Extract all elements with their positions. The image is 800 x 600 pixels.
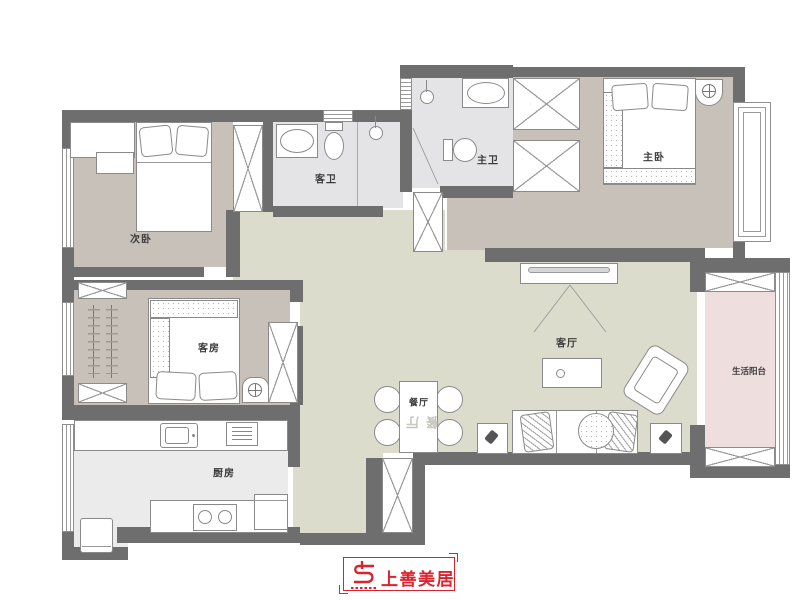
- wall: [440, 186, 513, 198]
- logo-fine-print: [351, 587, 377, 589]
- tv-screen: [528, 267, 610, 273]
- dining-chair: [436, 419, 463, 446]
- water-heater-line: [82, 546, 111, 547]
- balcony-cabinet-xbox: [705, 447, 775, 467]
- burner: [198, 510, 212, 524]
- floor-hallway-left: [233, 255, 300, 280]
- floor-plan: 次卧 客卫 主卫 主卧 客房 厨房 餐厅 客厅 生活阳台 餐厅 上善美居: [0, 0, 800, 600]
- wardrobe-xbox: [233, 125, 263, 212]
- sink-basin: [467, 82, 505, 104]
- guestroom-cabinet-xbox: [78, 282, 127, 299]
- room-label-kitchen: 厨房: [213, 465, 235, 480]
- lamp-symbol: [248, 383, 262, 397]
- dining-chair: [374, 386, 401, 413]
- bed-runner: [603, 168, 696, 184]
- room-label-guest-bathroom: 客卫: [315, 171, 337, 186]
- room-label-guest-room: 客房: [198, 340, 220, 355]
- dining-chair: [436, 386, 463, 413]
- wall: [62, 110, 273, 122]
- wall: [273, 206, 383, 217]
- vent-grille: [226, 422, 258, 446]
- toilet-tank: [443, 139, 453, 161]
- wall: [705, 258, 790, 272]
- master-wardrobe-xbox: [513, 78, 580, 130]
- room-label-balcony: 生活阳台: [732, 365, 766, 377]
- wall: [226, 210, 240, 277]
- toilet-tank: [325, 122, 343, 131]
- guestroom-cabinet-xbox: [78, 383, 127, 403]
- guestroom-wardrobe-xbox: [268, 322, 298, 403]
- dining-watermark: 餐厅: [399, 414, 439, 433]
- shower-stem: [426, 80, 427, 92]
- bed-side-strip: [150, 318, 170, 378]
- wall: [485, 248, 697, 262]
- wall: [62, 405, 300, 420]
- window: [62, 148, 74, 248]
- pillow: [651, 83, 689, 111]
- wall: [290, 280, 303, 302]
- room-label-master-bedroom: 主卧: [643, 149, 665, 164]
- dining-chair: [374, 419, 401, 446]
- master-wardrobe-xbox: [513, 140, 580, 192]
- balcony-cabinet-xbox: [705, 272, 775, 292]
- lamp-symbol: [702, 84, 716, 98]
- pillow: [611, 83, 649, 111]
- balcony-window: [775, 272, 790, 465]
- pillow: [198, 371, 237, 401]
- wall: [400, 110, 412, 192]
- water-heater: [80, 518, 113, 553]
- logo-brand-text: 上善美居: [381, 565, 455, 590]
- wall: [300, 533, 423, 545]
- window: [400, 78, 412, 110]
- logo-monogram: [349, 559, 379, 587]
- wall: [690, 248, 705, 292]
- sofa-pillow: [520, 411, 555, 453]
- kitchen-sink-basin: [165, 427, 189, 444]
- fridge-line: [255, 500, 287, 501]
- window: [62, 302, 74, 376]
- bed-line: [137, 162, 211, 163]
- pillow: [175, 125, 209, 158]
- wall: [352, 110, 403, 122]
- bed-runner: [150, 300, 238, 318]
- toilet-bowl: [324, 132, 344, 160]
- window: [323, 110, 353, 122]
- room-label-dining: 餐厅: [409, 396, 429, 409]
- wall: [62, 376, 74, 408]
- wall: [733, 67, 745, 102]
- pillow: [139, 124, 174, 157]
- wall: [62, 267, 204, 277]
- window: [62, 424, 74, 532]
- wall: [273, 110, 323, 122]
- sink-basin: [280, 129, 314, 153]
- wall: [366, 458, 382, 533]
- coffee-table-decor: [556, 369, 565, 378]
- wall: [400, 65, 412, 78]
- hall-cabinet-xbox: [413, 192, 443, 252]
- wall: [513, 67, 745, 77]
- toilet-bowl: [453, 138, 477, 162]
- sofa-plant: [578, 413, 614, 449]
- wall: [263, 110, 273, 212]
- wall: [733, 242, 745, 258]
- shower-head: [420, 90, 434, 104]
- bay-window: [733, 102, 771, 242]
- shower-divider: [357, 122, 358, 206]
- room-label-secondary-bedroom: 次卧: [130, 231, 152, 246]
- room-label-master-bathroom: 主卫: [477, 152, 499, 167]
- radiator: [85, 305, 122, 378]
- coffee-table: [542, 358, 602, 388]
- pillow: [155, 371, 196, 401]
- logo-corner-tick: [339, 585, 348, 594]
- shower-head: [369, 126, 383, 140]
- room-label-living: 客厅: [556, 335, 578, 350]
- faucet-dot: [192, 434, 195, 437]
- wall: [400, 65, 513, 78]
- logo-corner-tick: [449, 553, 458, 562]
- hall-tall-cabinet-xbox: [382, 458, 413, 533]
- nightstand: [96, 152, 134, 174]
- burner: [218, 510, 232, 524]
- shower-stem: [375, 116, 376, 128]
- wall: [413, 452, 425, 545]
